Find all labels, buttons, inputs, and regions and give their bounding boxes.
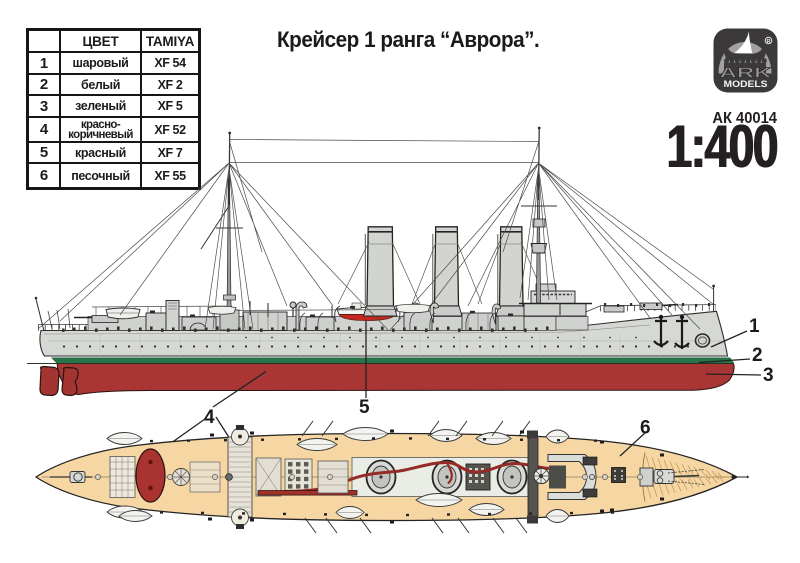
svg-text:3: 3 xyxy=(763,365,774,386)
svg-text:4: 4 xyxy=(204,407,215,428)
svg-text:2: 2 xyxy=(752,345,763,366)
svg-text:5: 5 xyxy=(359,397,370,418)
svg-text:1: 1 xyxy=(749,316,760,337)
